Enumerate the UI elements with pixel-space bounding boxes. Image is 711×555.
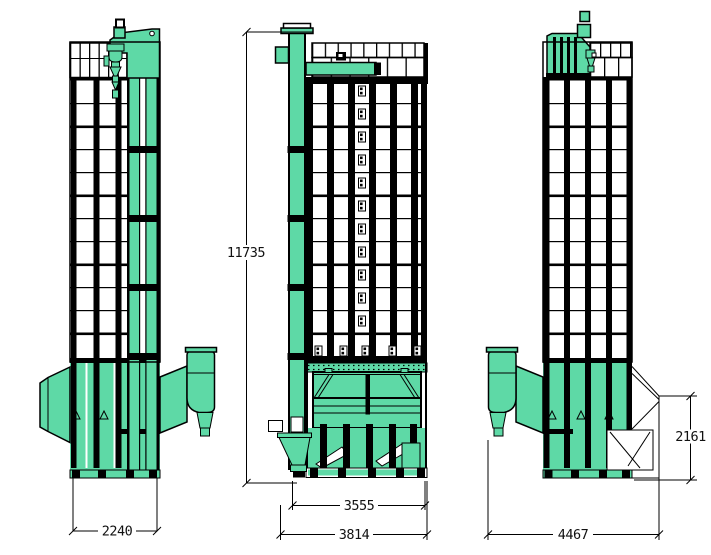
- front-view: [269, 24, 429, 478]
- right-top-louver-row2: [590, 58, 632, 78]
- inspection-door-icon: [359, 109, 366, 119]
- inspection-door-icon: [359, 201, 366, 211]
- fan-inlet-cone: [160, 366, 187, 433]
- base-frame: [543, 470, 632, 478]
- drawing-canvas: 11735 2240 3555 3814: [0, 0, 711, 555]
- inspection-door-icon: [315, 346, 322, 356]
- dimension-front-inner-width: 3555: [289, 481, 430, 514]
- elevator-cap: [281, 28, 313, 34]
- air-intake-plenum: [40, 367, 70, 443]
- inspection-door-icon: [359, 293, 366, 303]
- front-grid-panels: [306, 84, 427, 356]
- discharge-auger-section: [308, 424, 425, 468]
- inspection-door-icon: [359, 178, 366, 188]
- elevator-side-box: [276, 47, 289, 63]
- inspection-door-icon: [414, 346, 421, 356]
- inspection-door-icon: [340, 346, 347, 356]
- hot-air-chamber: [313, 369, 421, 429]
- elevator-boot-hopper: [279, 438, 310, 466]
- dim-text-overall-height: 11735: [227, 245, 266, 261]
- discharge-chute: [107, 44, 124, 51]
- fan-outlet-flange: [487, 348, 518, 353]
- elevator-window: [291, 417, 303, 432]
- grain-dryer-three-view-drawing: 11735 2240 3555 3814: [0, 0, 711, 555]
- inspection-door-icon: [359, 155, 366, 165]
- dim-text-right-overall-width: 4467: [558, 527, 589, 543]
- fan-inlet-cone: [516, 366, 543, 433]
- dim-text-front-overall-width: 3814: [339, 527, 370, 543]
- inspection-door-icon: [359, 247, 366, 257]
- left-side-view: [40, 20, 217, 532]
- inspection-door-icon: [359, 132, 366, 142]
- drive-motor: [578, 25, 591, 38]
- elevator-head: [546, 12, 596, 78]
- dim-text-front-inner-width: 3555: [344, 498, 375, 514]
- front-top-louver-row1: [312, 43, 424, 58]
- inspection-door-icon: [359, 270, 366, 280]
- grain-layer-band: [306, 363, 427, 372]
- dim-text-left-base-width: 2240: [102, 524, 133, 540]
- right-side-view: [487, 12, 660, 541]
- inspection-door-icon: [359, 86, 366, 96]
- inspection-door-icon: [359, 316, 366, 326]
- fan-outlet-flange: [186, 348, 217, 353]
- dim-text-right-lower-height: 2161: [675, 429, 706, 445]
- inspection-door-icon: [389, 346, 396, 356]
- drive-motor: [114, 27, 125, 38]
- exhaust-fan-scroll: [489, 352, 517, 413]
- inspection-door-icon: [359, 224, 366, 234]
- inspection-door-icon: [362, 346, 369, 356]
- base-frame: [70, 470, 160, 478]
- exhaust-fan-scroll: [187, 352, 215, 413]
